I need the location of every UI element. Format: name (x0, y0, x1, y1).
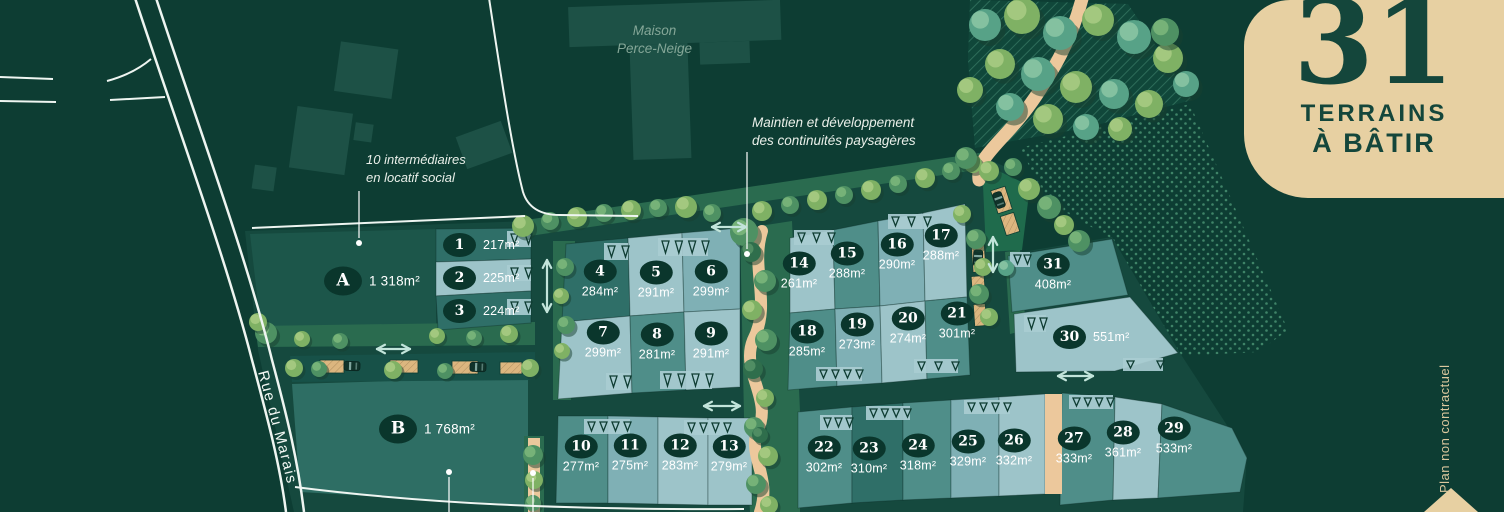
lot-polygon-29[interactable] (1158, 404, 1247, 498)
plan-disclaimer: Plan non contractuel (1437, 348, 1452, 493)
landscape-continuity-note: Maintien et développement des continuité… (752, 114, 916, 150)
lot-count-badge: 31 TERRAINS À BÂTIR (1244, 0, 1504, 198)
maison-perce-neige-label: Maison Perce-Neige (592, 22, 717, 58)
social-housing-note: 10 intermédiaires en locatif social (366, 151, 466, 186)
lot-count-number: 31 (1293, 0, 1454, 97)
lot-count-line1: TERRAINS (1301, 100, 1448, 128)
lot-polygon-27[interactable] (1060, 393, 1115, 505)
parcel-B[interactable] (292, 377, 528, 505)
lot-polygon-24[interactable] (903, 400, 951, 500)
parcel-A[interactable] (250, 229, 436, 338)
lot-polygon-15[interactable] (833, 221, 880, 309)
site-plan: Rue du Marais 1217m²2225m²3224m²4284m²52… (0, 0, 1504, 512)
building-silhouettes (252, 0, 854, 206)
lot-count-line2: À BÂTIR (1312, 128, 1436, 159)
lot-polygon-28[interactable] (1113, 397, 1162, 500)
